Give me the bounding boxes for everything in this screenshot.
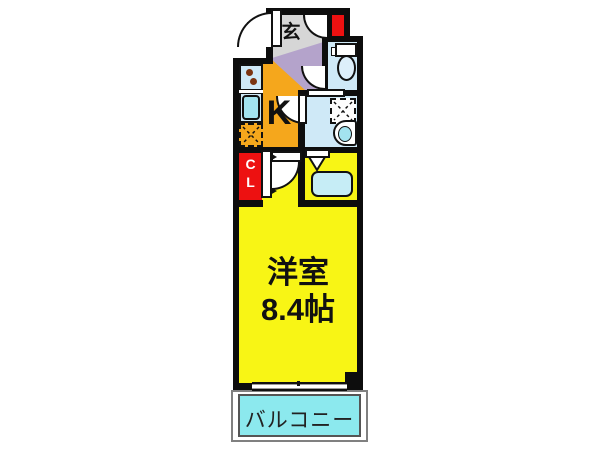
wall-bath-bottom: [298, 200, 363, 207]
floor-plan: 玄 K C L 洋室 8.4帖 バルコニー: [0, 0, 600, 450]
toilet-bowl-icon: [337, 55, 356, 81]
stove-burner-icon: [250, 78, 257, 85]
genkan-label: 玄: [276, 17, 306, 44]
stove-burner-icon: [246, 69, 253, 76]
wall-closet-bottom: [233, 200, 263, 207]
wall-corner-notch: [345, 372, 363, 390]
bathtub-icon: [311, 171, 353, 197]
balcony-label: バルコニー: [239, 404, 360, 434]
room-size-label: 8.4帖: [239, 284, 357, 329]
kitchen-label: K: [256, 94, 302, 133]
closet-door-pivot-bottom-icon: [270, 187, 277, 195]
pipe-space: [332, 15, 344, 36]
closet-label-line1: C: [240, 156, 261, 172]
window-center-tick: [297, 381, 300, 386]
closet-door-pivot-top-icon: [270, 153, 277, 161]
wash-basin-bowl-icon: [338, 126, 352, 142]
wall-genkan-left-stub: [266, 44, 273, 64]
washroom-door-leaf-icon: [307, 89, 345, 97]
washing-machine-x-icon: [332, 100, 354, 122]
entrance-door-swing-icon: [237, 12, 272, 47]
closet-label-line2: L: [240, 174, 261, 190]
